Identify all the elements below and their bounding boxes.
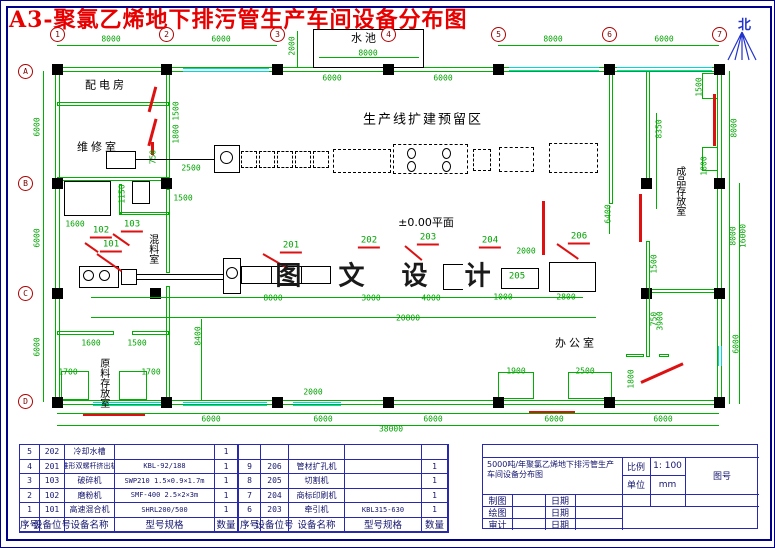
wall-segment xyxy=(646,71,650,189)
drawing-no-label: 图号 xyxy=(685,457,759,494)
dim-label: 4000 xyxy=(421,294,440,303)
equipment-line xyxy=(136,279,224,280)
equipment-table-right: 9206管材扩孔机18205切割机17204商标印刷机16203牵引机KBL31… xyxy=(238,444,449,533)
table-cell: 9 xyxy=(239,460,261,475)
equipment-callout: 103 xyxy=(121,220,143,233)
dimension-line xyxy=(57,45,277,46)
dim-label: 2000 xyxy=(516,247,535,256)
table-cell: 204 xyxy=(261,489,289,504)
wall-segment xyxy=(626,354,644,357)
structural-column xyxy=(493,397,504,408)
room-label: 原料存放室 xyxy=(97,358,109,408)
dimension-line xyxy=(498,45,719,46)
dim-label: 1500 xyxy=(127,339,146,348)
structural-column xyxy=(52,178,63,189)
equipment-outline xyxy=(132,181,150,204)
table-cell xyxy=(422,445,448,460)
structural-column xyxy=(714,288,725,299)
grid-bubble-row: A xyxy=(18,64,33,79)
project-title: 5000吨/年聚氯乙烯地下排污管生产车间设备分布图 xyxy=(487,460,618,492)
table-cell: SHRL200/500 xyxy=(115,503,215,518)
table-cell: 锥形双螺杆挤出机 xyxy=(65,460,115,475)
structural-column xyxy=(52,64,63,75)
scale-label: 比例 xyxy=(622,457,650,475)
dim-label: 38000 xyxy=(379,425,403,434)
table-cell: 203 xyxy=(261,503,289,518)
date-label: 日期 xyxy=(545,518,575,530)
dim-label: 8000 xyxy=(263,294,282,303)
table-cell: 1 xyxy=(422,460,448,475)
watermark-text: 图 文 设 计 xyxy=(275,256,504,293)
dim-label: 6000 xyxy=(33,228,42,247)
door-mark xyxy=(713,94,716,146)
table-header-cell: 设备名称 xyxy=(65,518,115,533)
equipment-circle xyxy=(83,270,94,281)
equipment-line xyxy=(136,274,224,275)
table-cell: 202 xyxy=(40,445,65,460)
table-cell: SWP210 1.5×0.9×1.7m xyxy=(115,474,215,489)
table-cell: 牵引机 xyxy=(289,503,345,518)
structural-column xyxy=(52,288,63,299)
equipment-table-left: 5202冷却水槽14201锥形双螺杆挤出机KBL-92/18813103破碎机S… xyxy=(19,444,239,533)
expansion-area-label: 生产线扩建预留区 xyxy=(363,109,483,128)
table-header-cell: 设备位号 xyxy=(261,518,289,533)
equipment-line xyxy=(271,266,272,284)
wall-segment xyxy=(659,354,669,357)
unit-label: 单位 xyxy=(622,475,650,494)
structural-column xyxy=(161,178,172,189)
grid-bubble-col: 6 xyxy=(602,27,617,42)
unit-value: mm xyxy=(650,475,685,494)
dim-label: 2500 xyxy=(181,164,200,173)
table-cell: 磨粉机 xyxy=(65,489,115,504)
window-segment xyxy=(293,402,341,406)
equipment-callout: 203 xyxy=(417,233,439,246)
equipment-dashed-outline xyxy=(473,149,491,171)
wall-segment xyxy=(55,71,60,405)
dim-label: 6000 xyxy=(423,415,442,424)
equipment-dashed-outline xyxy=(499,147,534,172)
equipment-callout: 204 xyxy=(479,236,501,249)
dim-label: 6000 xyxy=(313,415,332,424)
table-header-cell: 数量 xyxy=(422,518,448,533)
equipment-callout: 102 xyxy=(90,226,112,239)
table-cell: 1 xyxy=(215,445,238,460)
date-label: 日期 xyxy=(545,506,575,518)
wall-segment xyxy=(609,71,613,204)
table-header-cell: 设备位号 xyxy=(40,518,65,533)
structural-column xyxy=(714,64,725,75)
table-header-cell: 设备名称 xyxy=(289,518,345,533)
auditor-label: 审计 xyxy=(483,518,512,530)
table-cell: 管材扩孔机 xyxy=(289,460,345,475)
dim-label: 20800 xyxy=(396,314,420,323)
dim-label: 3000 xyxy=(361,294,380,303)
wall-segment xyxy=(568,372,612,399)
dim-label: 6000 xyxy=(33,117,42,136)
grid-bubble-row: B xyxy=(18,176,33,191)
structural-column xyxy=(52,397,63,408)
equipment-callout: 205 xyxy=(506,272,528,283)
equipment-callout: 101 xyxy=(100,240,122,253)
equipment-dashed-outline xyxy=(313,151,329,168)
table-cell: 1 xyxy=(215,460,238,475)
structural-column xyxy=(604,64,615,75)
window-segment xyxy=(718,346,722,366)
dim-label: 1500 xyxy=(695,77,704,96)
table-cell: 101 xyxy=(40,503,65,518)
dim-label: 8000 xyxy=(358,49,377,58)
equipment-circle xyxy=(226,267,238,279)
dim-label: 1800 xyxy=(700,156,709,175)
structural-column xyxy=(272,397,283,408)
wall-segment xyxy=(646,289,723,293)
table-cell: 7 xyxy=(239,489,261,504)
dim-label: 8000 xyxy=(101,35,120,44)
table-cell xyxy=(345,489,422,504)
structural-column xyxy=(383,397,394,408)
dim-label: 6000 xyxy=(544,415,563,424)
dim-label: 750 xyxy=(149,150,158,164)
cad-drawing-page: A3-聚氯乙烯地下排污管生产车间设备分布图 北 1234567ABCD 8000… xyxy=(0,0,775,548)
structural-column xyxy=(714,178,725,189)
structural-column xyxy=(641,178,652,189)
dim-label: 6000 xyxy=(433,74,452,83)
level-label: ±0.00平面 xyxy=(398,214,454,230)
table-cell: 破碎机 xyxy=(65,474,115,489)
room-label: 混料室 xyxy=(146,234,158,264)
table-header-cell: 型号规格 xyxy=(115,518,215,533)
equipment-callout: 201 xyxy=(280,241,302,254)
equipment-circle xyxy=(99,270,110,281)
dim-label: 8000 xyxy=(543,35,562,44)
dim-label: 1500 xyxy=(650,254,659,273)
table-cell: 3 xyxy=(20,474,40,489)
equipment-dashed-outline xyxy=(259,151,275,168)
dim-label: 1700 xyxy=(141,368,160,377)
page-title: A3-聚氯乙烯地下排污管生产车间设备分布图 xyxy=(9,2,468,34)
wall-segment xyxy=(57,331,114,335)
structural-column xyxy=(161,64,172,75)
north-arrow-icon xyxy=(723,29,761,63)
dim-label: 6000 xyxy=(732,334,741,353)
equipment-dashed-outline xyxy=(241,151,257,168)
table-cell xyxy=(289,445,345,460)
structural-column xyxy=(641,288,652,299)
dim-label: 2500 xyxy=(575,367,594,376)
dim-label: 1900 xyxy=(506,367,525,376)
structural-column xyxy=(714,397,725,408)
dim-label: 1150 xyxy=(118,184,127,203)
dim-label: 6000 xyxy=(211,35,230,44)
table-cell xyxy=(115,445,215,460)
equipment-circle xyxy=(220,151,233,164)
equipment-callout: 206 xyxy=(568,232,590,245)
dim-label: 8400 xyxy=(194,326,203,345)
wall-segment xyxy=(498,372,534,399)
table-cell: 8 xyxy=(239,474,261,489)
window-segment xyxy=(183,68,269,72)
table-cell: 2 xyxy=(20,489,40,504)
window-segment xyxy=(183,402,267,406)
dim-label: 2800 xyxy=(556,293,575,302)
table-cell: SMF-400 2.5×2×3m xyxy=(115,489,215,504)
grid-bubble-col: 5 xyxy=(491,27,506,42)
table-cell xyxy=(345,474,422,489)
table-cell xyxy=(261,445,289,460)
title-block: 5000吨/年聚氯乙烯地下排污管生产车间设备分布图 比例 1: 100 单位 m… xyxy=(482,444,758,529)
grid-bubble-row: D xyxy=(18,394,33,409)
table-cell: 206 xyxy=(261,460,289,475)
dim-label: 1600 xyxy=(65,220,84,229)
table-cell: 103 xyxy=(40,474,65,489)
equipment-outline xyxy=(549,262,596,292)
wall-segment xyxy=(119,212,169,215)
equipment-dashed-outline xyxy=(549,143,598,173)
table-cell: 1 xyxy=(422,474,448,489)
dim-label: 8000 xyxy=(729,226,738,245)
table-cell: 冷却水槽 xyxy=(65,445,115,460)
dim-label: 2000 xyxy=(303,388,322,397)
window-segment xyxy=(509,67,599,71)
scale-value: 1: 100 xyxy=(650,457,685,475)
dim-label: 6400 xyxy=(604,204,613,223)
window-segment xyxy=(617,67,712,71)
dim-label: 1600 xyxy=(81,339,100,348)
dim-label: 1800 xyxy=(172,124,181,143)
dim-label: 6000 xyxy=(33,337,42,356)
dim-label: 1700 xyxy=(58,368,77,377)
table-header-cell: 型号规格 xyxy=(345,518,422,533)
door-mark xyxy=(639,194,642,242)
wall-segment xyxy=(166,286,170,400)
dim-label: 1000 xyxy=(493,293,512,302)
room-label: 维修室 xyxy=(77,142,119,155)
dim-label: 6000 xyxy=(653,415,672,424)
wall-segment xyxy=(132,331,169,335)
dim-label: 1500 xyxy=(172,101,181,120)
equipment-dashed-outline xyxy=(277,151,293,168)
equipment-dashed-outline xyxy=(393,144,468,174)
drawer-label: 绘图 xyxy=(483,506,512,518)
dim-label: 6000 xyxy=(201,415,220,424)
drafter-label: 制图 xyxy=(483,494,512,506)
table-cell: 205 xyxy=(261,474,289,489)
table-cell: 1 xyxy=(20,503,40,518)
grid-bubble-row: C xyxy=(18,286,33,301)
room-label: 配电房 xyxy=(85,80,127,93)
dimension-line xyxy=(91,317,596,318)
table-cell: 商标印刷机 xyxy=(289,489,345,504)
table-cell: 1 xyxy=(422,489,448,504)
dim-label: 1500 xyxy=(173,194,192,203)
structural-column xyxy=(604,397,615,408)
structural-column xyxy=(493,64,504,75)
table-cell: 5 xyxy=(20,445,40,460)
table-cell: KBL-92/188 xyxy=(115,460,215,475)
dimension-line xyxy=(739,183,740,404)
dimension-line xyxy=(43,71,44,402)
table-cell: 1 xyxy=(215,474,238,489)
dim-label: 16000 xyxy=(739,224,748,248)
table-cell: 1 xyxy=(215,503,238,518)
equipment-outline xyxy=(121,269,137,285)
dimension-line xyxy=(297,31,298,67)
dim-label: 2000 xyxy=(288,36,297,55)
date-label: 日期 xyxy=(545,494,575,506)
equipment-dashed-outline xyxy=(295,151,311,168)
structural-column xyxy=(272,64,283,75)
grid-bubble-col: 7 xyxy=(712,27,727,42)
wall-segment xyxy=(166,71,170,179)
table-cell: 高速混合机 xyxy=(65,503,115,518)
table-cell: 1 xyxy=(422,503,448,518)
table-header-cell: 数量 xyxy=(215,518,238,533)
door-mark xyxy=(542,201,545,255)
dim-label: 3900 xyxy=(656,311,665,330)
dim-label: 8350 xyxy=(655,119,664,138)
table-cell: 1 xyxy=(215,489,238,504)
equipment-callout: 202 xyxy=(358,236,380,249)
room-label: 水池 xyxy=(351,33,379,46)
dimension-line xyxy=(57,413,719,414)
equipment-dashed-outline xyxy=(333,149,391,173)
room-label: 办公室 xyxy=(555,338,597,351)
table-cell: 6 xyxy=(239,503,261,518)
dim-label: 8000 xyxy=(730,118,739,137)
dim-label: 1800 xyxy=(627,369,636,388)
dim-label: 6000 xyxy=(322,74,341,83)
table-cell xyxy=(345,445,422,460)
table-cell: 102 xyxy=(40,489,65,504)
table-cell xyxy=(239,445,261,460)
room-label: 成品存放室 xyxy=(673,166,685,216)
structural-column xyxy=(161,397,172,408)
dim-label: 6000 xyxy=(654,35,673,44)
equipment-outline xyxy=(64,181,111,216)
table-cell: 切割机 xyxy=(289,474,345,489)
wall-segment xyxy=(166,189,170,273)
table-cell xyxy=(345,460,422,475)
table-cell: KBL315-630 xyxy=(345,503,422,518)
table-cell: 201 xyxy=(40,460,65,475)
table-cell: 4 xyxy=(20,460,40,475)
